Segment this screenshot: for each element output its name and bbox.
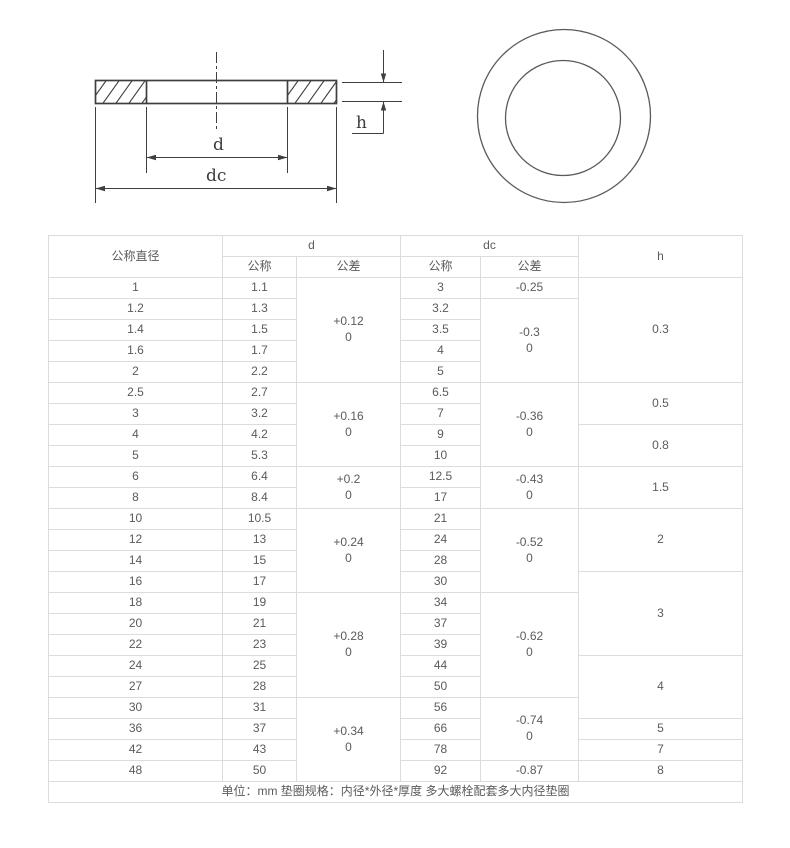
data-cell: +0.24 0	[297, 509, 401, 593]
data-cell: 50	[401, 677, 481, 698]
data-cell: 66	[401, 719, 481, 740]
data-cell: 4	[579, 656, 743, 719]
data-cell: -0.25	[481, 278, 579, 299]
dim-label-h: h	[356, 113, 367, 133]
data-cell: +0.28 0	[297, 593, 401, 698]
data-cell: 22	[49, 635, 223, 656]
header-cell: 公差	[481, 257, 579, 278]
data-cell: 14	[49, 551, 223, 572]
table-row: 2.52.7+0.16 06.5-0.36 00.5	[49, 383, 743, 404]
data-cell: -0.52 0	[481, 509, 579, 593]
data-cell: 1.2	[49, 299, 223, 320]
data-cell: 1.5	[579, 467, 743, 509]
dimension-arrows	[96, 74, 387, 192]
data-cell: -0.62 0	[481, 593, 579, 698]
data-cell: 27	[49, 677, 223, 698]
data-cell: 3.2	[401, 299, 481, 320]
data-cell: 0.5	[579, 383, 743, 425]
data-cell: -0.87	[481, 761, 579, 782]
spec-table-footer: 单位：mm 垫圈规格：内径*外径*厚度 多大螺栓配套多大内径垫圈	[49, 782, 743, 803]
front-view	[478, 30, 651, 203]
data-cell: 25	[223, 656, 297, 677]
data-cell: 1.6	[49, 341, 223, 362]
washer-spec-table: 公称直径ddch公称公差公称公差 11.1+0.12 03-0.250.31.2…	[48, 235, 743, 803]
header-cell: 公称直径	[49, 236, 223, 278]
data-cell: 1	[49, 278, 223, 299]
data-cell: 39	[401, 635, 481, 656]
data-cell: 31	[223, 698, 297, 719]
washer-technical-drawing: d dc h	[0, 0, 790, 230]
data-cell: 21	[223, 614, 297, 635]
data-cell: +0.16 0	[297, 383, 401, 467]
data-cell: 5	[401, 362, 481, 383]
data-cell: 19	[223, 593, 297, 614]
data-cell: 1.5	[223, 320, 297, 341]
data-cell: 30	[401, 572, 481, 593]
data-cell: 3.2	[223, 404, 297, 425]
table-row: 11.1+0.12 03-0.250.3	[49, 278, 743, 299]
hatch-right	[280, 78, 352, 106]
data-cell: 48	[49, 761, 223, 782]
data-cell: 1.3	[223, 299, 297, 320]
data-cell: 30	[49, 698, 223, 719]
data-cell: 7	[579, 740, 743, 761]
data-cell: 5.3	[223, 446, 297, 467]
data-cell: 2.5	[49, 383, 223, 404]
spec-table-header: 公称直径ddch公称公差公称公差	[49, 236, 743, 278]
data-cell: 2.7	[223, 383, 297, 404]
data-cell: 20	[49, 614, 223, 635]
data-cell: 1.4	[49, 320, 223, 341]
data-cell: -0.74 0	[481, 698, 579, 761]
data-cell: 3.5	[401, 320, 481, 341]
data-cell: 3	[49, 404, 223, 425]
data-cell: 43	[223, 740, 297, 761]
data-cell: 0.8	[579, 425, 743, 467]
data-cell: 10.5	[223, 509, 297, 530]
data-cell: 78	[401, 740, 481, 761]
data-cell: 12.5	[401, 467, 481, 488]
data-cell: 2	[49, 362, 223, 383]
data-cell: 3	[401, 278, 481, 299]
data-cell: 23	[223, 635, 297, 656]
data-cell: 24	[401, 530, 481, 551]
data-cell: 24	[49, 656, 223, 677]
data-cell: +0.2 0	[297, 467, 401, 509]
table-row: 公称直径ddch	[49, 236, 743, 257]
data-cell: 6.4	[223, 467, 297, 488]
data-cell: 10	[401, 446, 481, 467]
data-cell: 4.2	[223, 425, 297, 446]
data-cell: 1.1	[223, 278, 297, 299]
data-cell: +0.34 0	[297, 698, 401, 782]
header-cell: d	[223, 236, 401, 257]
dim-label-d: d	[213, 135, 224, 155]
data-cell: 6.5	[401, 383, 481, 404]
data-cell: 18	[49, 593, 223, 614]
data-cell: 8	[579, 761, 743, 782]
data-cell: 6	[49, 467, 223, 488]
data-cell: 37	[223, 719, 297, 740]
page: d dc h 公称直径ddch公称公差公称公差 11.1+0.12 03-0.2…	[0, 0, 790, 848]
data-cell: 21	[401, 509, 481, 530]
data-cell: 3	[579, 572, 743, 656]
dim-label-dc: dc	[206, 166, 226, 186]
header-cell: h	[579, 236, 743, 278]
table-row: 单位：mm 垫圈规格：内径*外径*厚度 多大螺栓配套多大内径垫圈	[49, 782, 743, 803]
cross-section-view	[88, 50, 402, 203]
header-cell: dc	[401, 236, 579, 257]
data-cell: 37	[401, 614, 481, 635]
data-cell: 1.7	[223, 341, 297, 362]
hatch-left	[88, 78, 160, 106]
footer-note: 单位：mm 垫圈规格：内径*外径*厚度 多大螺栓配套多大内径垫圈	[49, 782, 743, 803]
data-cell: 15	[223, 551, 297, 572]
header-cell: 公称	[223, 257, 297, 278]
data-cell: 36	[49, 719, 223, 740]
data-cell: 17	[223, 572, 297, 593]
data-cell: 13	[223, 530, 297, 551]
data-cell: 42	[49, 740, 223, 761]
data-cell: 16	[49, 572, 223, 593]
table-row: 1010.5+0.24 021-0.52 02	[49, 509, 743, 530]
data-cell: 4	[401, 341, 481, 362]
outer-circle	[478, 30, 651, 203]
data-cell: 4	[49, 425, 223, 446]
data-cell: 2.2	[223, 362, 297, 383]
data-cell: 56	[401, 698, 481, 719]
data-cell: -0.36 0	[481, 383, 579, 467]
data-cell: 50	[223, 761, 297, 782]
data-cell: +0.12 0	[297, 278, 401, 383]
data-cell: 10	[49, 509, 223, 530]
data-cell: 12	[49, 530, 223, 551]
data-cell: 0.3	[579, 278, 743, 383]
header-cell: 公差	[297, 257, 401, 278]
data-cell: 28	[223, 677, 297, 698]
header-cell: 公称	[401, 257, 481, 278]
table-row: 66.4+0.2 012.5-0.43 01.5	[49, 467, 743, 488]
data-cell: 8	[49, 488, 223, 509]
data-cell: 34	[401, 593, 481, 614]
data-cell: 8.4	[223, 488, 297, 509]
spec-table-body: 11.1+0.12 03-0.250.31.21.33.2-0.3 01.41.…	[49, 278, 743, 782]
data-cell: 28	[401, 551, 481, 572]
data-cell: -0.43 0	[481, 467, 579, 509]
data-cell: 2	[579, 509, 743, 572]
data-cell: 7	[401, 404, 481, 425]
data-cell: 5	[49, 446, 223, 467]
data-cell: -0.3 0	[481, 299, 579, 383]
data-cell: 5	[579, 719, 743, 740]
data-cell: 92	[401, 761, 481, 782]
data-cell: 44	[401, 656, 481, 677]
data-cell: 17	[401, 488, 481, 509]
inner-circle	[506, 61, 621, 176]
data-cell: 9	[401, 425, 481, 446]
